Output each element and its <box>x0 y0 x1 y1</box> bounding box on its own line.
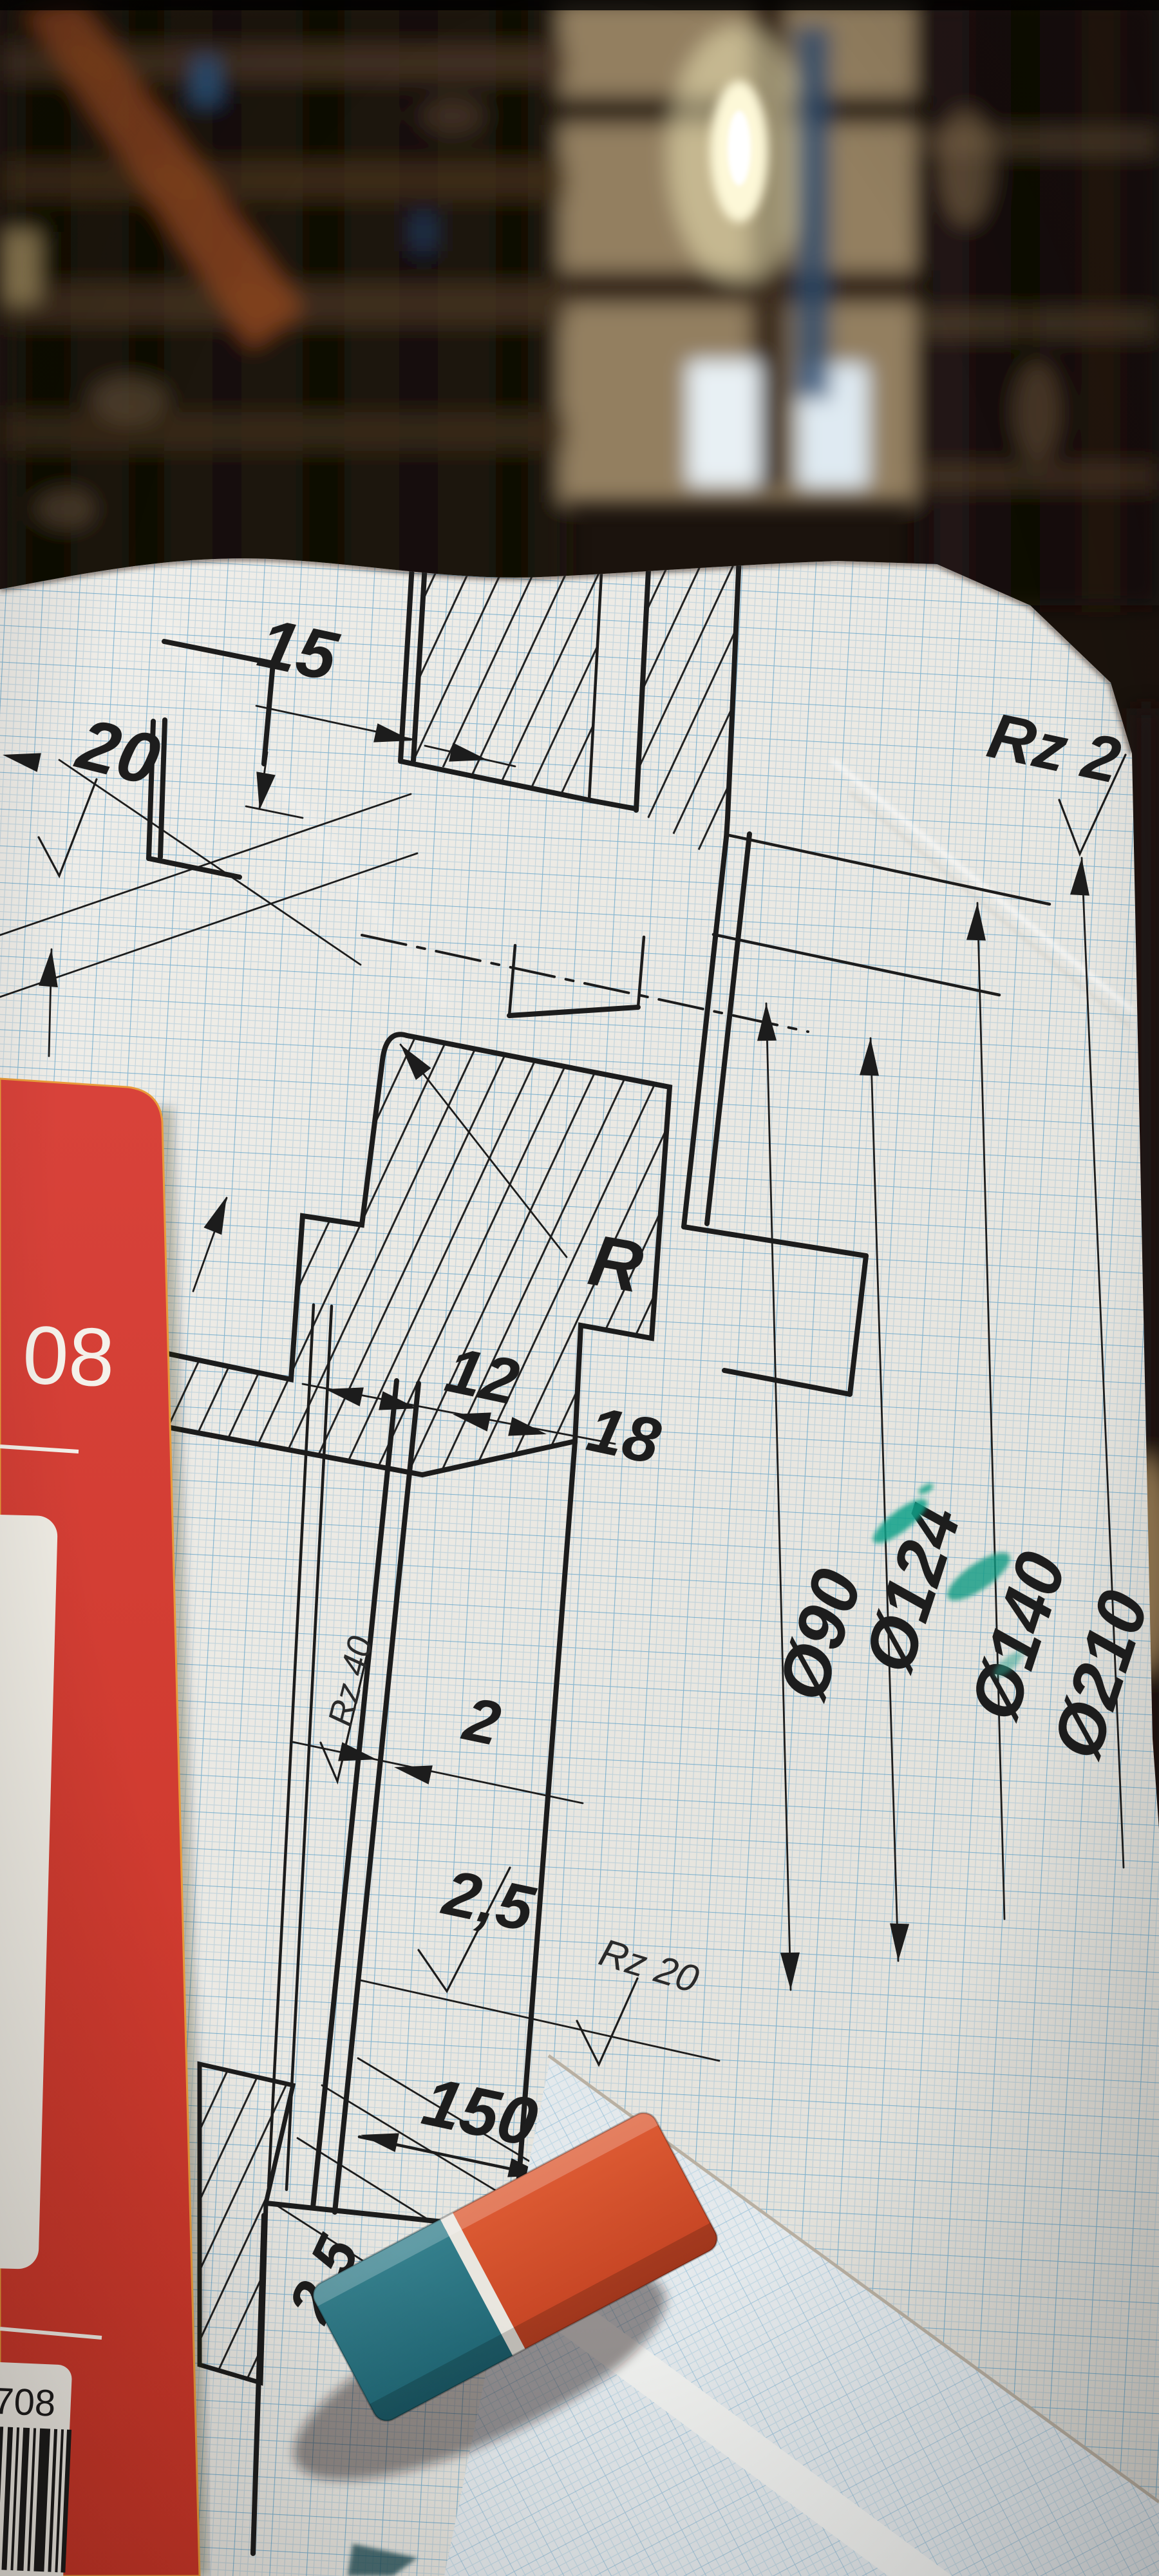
warehouse-blueprint-photo: 15 20 Rz 2 R 12 18 Ø90 Ø124 Ø140 Ø210 Rz… <box>0 0 1159 2576</box>
photo-canvas: 15 20 Rz 2 R 12 18 Ø90 Ø124 Ø140 Ø210 Rz… <box>0 0 1159 2576</box>
photo-vignette <box>0 0 1159 2576</box>
